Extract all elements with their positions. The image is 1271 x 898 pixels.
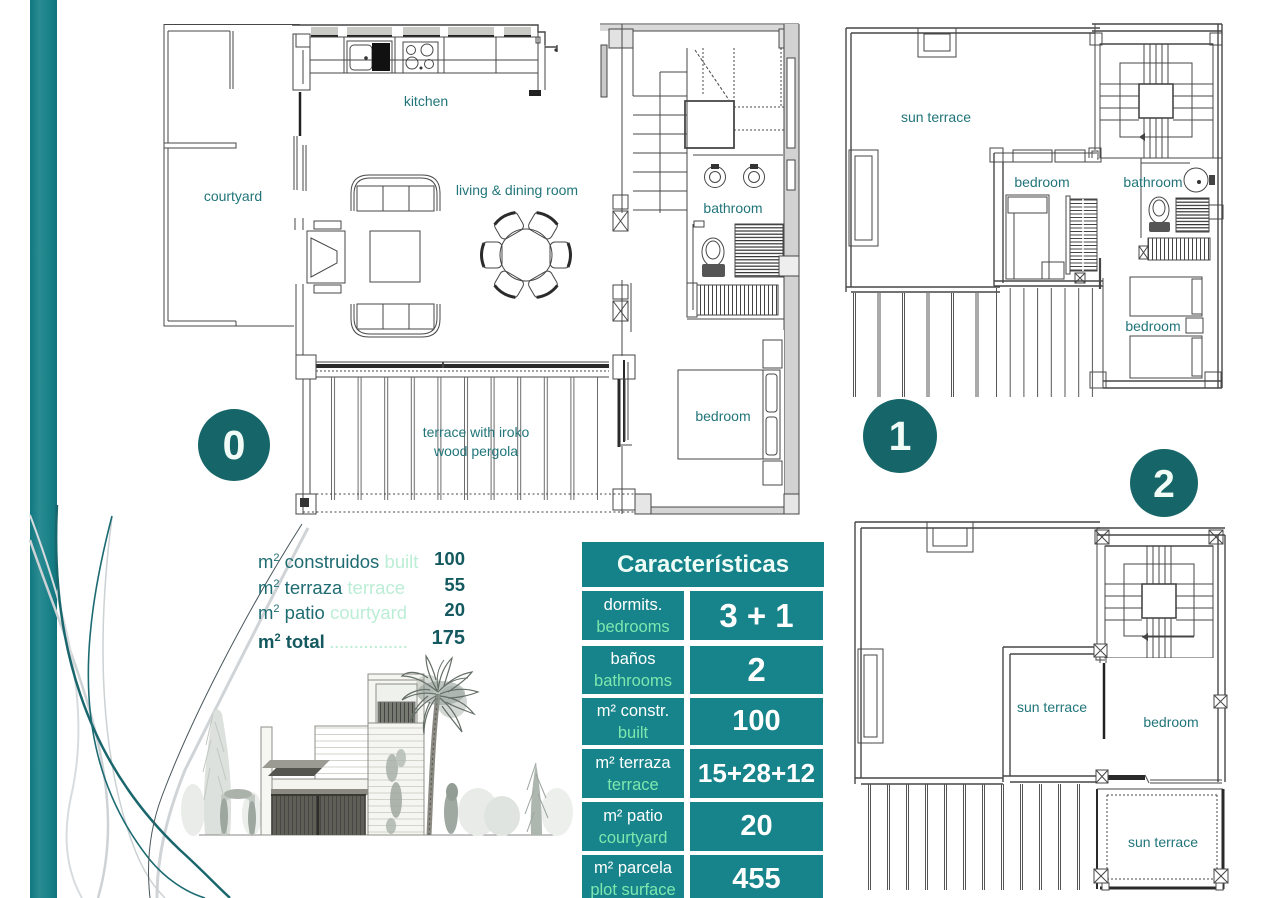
svg-text:bedroom: bedroom [695,408,750,424]
svg-text:bedroom: bedroom [1014,174,1069,190]
svg-text:sun terrace: sun terrace [901,109,971,125]
svg-text:terrace with iroko: terrace with iroko [423,424,530,440]
svg-text:bathroom: bathroom [1123,174,1182,190]
svg-text:sun terrace: sun terrace [1128,834,1198,850]
svg-text:wood pergola: wood pergola [433,443,518,459]
svg-text:0: 0 [223,422,246,468]
svg-text:living & dining room: living & dining room [456,182,578,198]
svg-text:bedroom: bedroom [1143,714,1198,730]
svg-text:1: 1 [889,413,912,459]
svg-text:courtyard: courtyard [204,188,262,204]
svg-text:bedroom: bedroom [1125,318,1180,334]
svg-text:2: 2 [1153,463,1175,506]
svg-text:sun terrace: sun terrace [1017,699,1087,715]
svg-text:bathroom: bathroom [703,200,762,216]
svg-text:kitchen: kitchen [404,93,448,109]
